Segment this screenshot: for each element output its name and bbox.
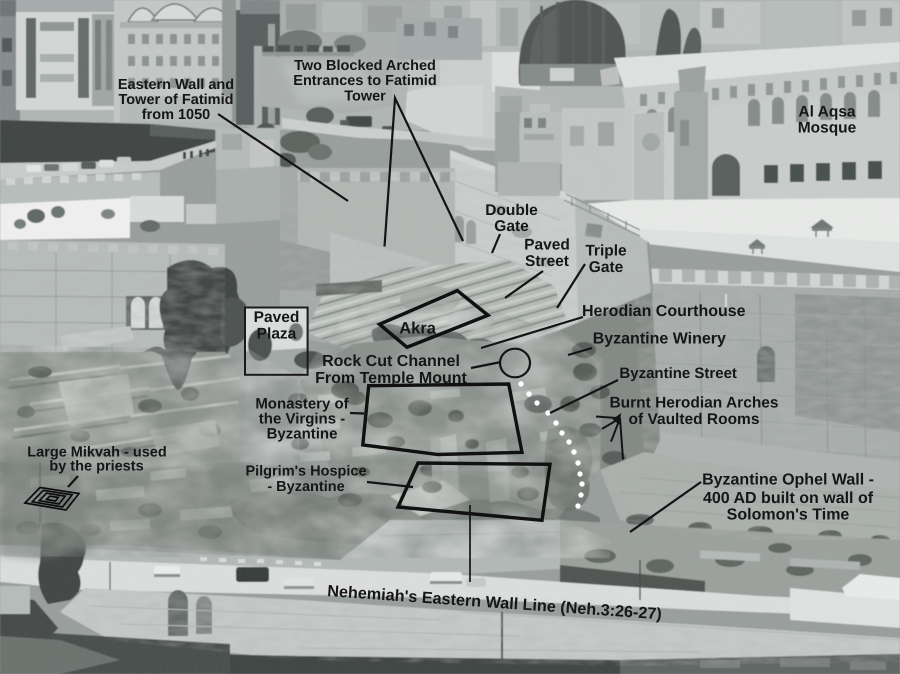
svg-text:Mosque: Mosque bbox=[798, 120, 857, 137]
svg-text:400 AD built on wall of: 400 AD built on wall of bbox=[703, 490, 874, 507]
svg-text:Eastern Wall and: Eastern Wall and bbox=[118, 77, 234, 93]
svg-text:Byzantine: Byzantine bbox=[267, 425, 338, 442]
svg-text:Entrances to Fatimid: Entrances to Fatimid bbox=[293, 73, 436, 89]
svg-text:Burnt Herodian Arches: Burnt Herodian Arches bbox=[609, 395, 778, 412]
svg-text:Two Blocked Arched: Two Blocked Arched bbox=[294, 58, 436, 74]
svg-text:Gate: Gate bbox=[589, 259, 624, 276]
svg-text:Al Aqsa: Al Aqsa bbox=[798, 103, 856, 120]
svg-text:Tower: Tower bbox=[344, 89, 386, 105]
svg-text:Paved: Paved bbox=[524, 236, 570, 253]
svg-text:from 1050: from 1050 bbox=[142, 107, 211, 123]
svg-text:Plaza: Plaza bbox=[257, 326, 297, 343]
svg-text:Pilgrim's Hospice: Pilgrim's Hospice bbox=[245, 463, 366, 479]
svg-text:Byzantine Street: Byzantine Street bbox=[619, 365, 737, 382]
svg-text:Byzantine Ophel Wall -: Byzantine Ophel Wall - bbox=[702, 472, 874, 489]
svg-text:Tower of Fatimid: Tower of Fatimid bbox=[119, 92, 234, 108]
svg-text:Solomon's Time: Solomon's Time bbox=[727, 507, 850, 524]
svg-text:- Byzantine: - Byzantine bbox=[267, 479, 344, 495]
svg-text:Herodian Courthouse: Herodian Courthouse bbox=[582, 303, 746, 320]
svg-text:Paved: Paved bbox=[254, 309, 300, 326]
svg-text:Street: Street bbox=[525, 253, 569, 270]
svg-text:Rock Cut Channel: Rock Cut Channel bbox=[322, 353, 460, 370]
svg-text:Double: Double bbox=[485, 202, 538, 219]
svg-text:by the priests: by the priests bbox=[49, 458, 143, 474]
svg-text:Akra: Akra bbox=[399, 320, 437, 338]
svg-text:Gate: Gate bbox=[494, 218, 529, 235]
svg-text:of Vaulted Rooms: of Vaulted Rooms bbox=[629, 411, 760, 428]
svg-text:Triple: Triple bbox=[585, 242, 627, 259]
svg-text:Byzantine Winery: Byzantine Winery bbox=[593, 331, 726, 348]
